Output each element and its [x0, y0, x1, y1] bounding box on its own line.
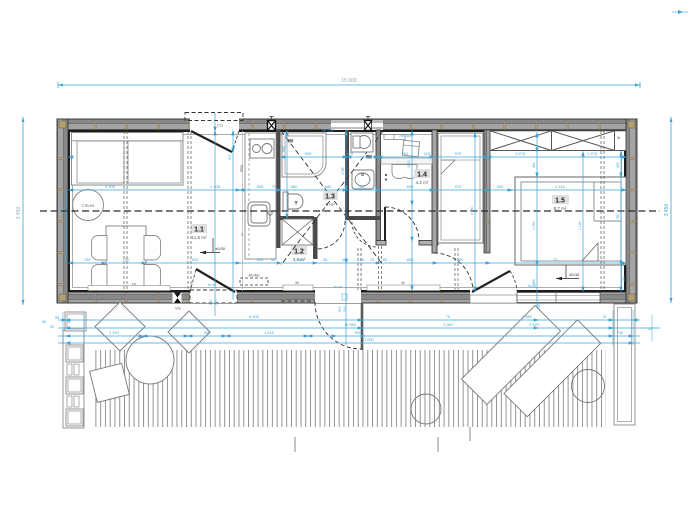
svg-text:1 580: 1 580 [522, 315, 532, 319]
svg-text:920: 920 [204, 331, 210, 335]
svg-text:3 450: 3 450 [664, 204, 670, 217]
svg-text:75: 75 [373, 184, 378, 189]
svg-text:1.2: 1.2 [294, 249, 304, 256]
svg-text:2 420: 2 420 [529, 323, 539, 327]
svg-text:300: 300 [214, 299, 218, 305]
svg-text:50: 50 [42, 320, 46, 324]
svg-text:2 110: 2 110 [555, 184, 565, 189]
svg-text:680: 680 [407, 257, 414, 262]
svg-text:75: 75 [446, 315, 450, 319]
svg-text:680: 680 [297, 257, 304, 262]
svg-text:690: 690 [407, 184, 414, 189]
svg-text:900: 900 [305, 151, 312, 156]
svg-text:75: 75 [602, 315, 606, 319]
svg-text:730: 730 [617, 331, 623, 335]
svg-text:900: 900 [228, 154, 232, 160]
svg-text:2 160: 2 160 [470, 206, 474, 215]
svg-text:M: M [296, 281, 299, 285]
svg-text:920: 920 [192, 257, 199, 262]
svg-text:115: 115 [424, 151, 431, 156]
svg-text:11 000: 11 000 [362, 338, 373, 342]
svg-text:1 275: 1 275 [587, 151, 598, 156]
svg-text:CTB-K0: CTB-K0 [82, 204, 95, 208]
svg-text:1 790: 1 790 [532, 221, 536, 230]
svg-text:2 060: 2 060 [443, 323, 453, 327]
svg-text:5 m²: 5 m² [326, 202, 336, 207]
svg-text:75: 75 [370, 257, 375, 262]
svg-text:970: 970 [455, 184, 462, 189]
svg-text:2 490: 2 490 [109, 331, 119, 335]
svg-text:h=±0: h=±0 [528, 284, 536, 288]
svg-text:h=±0: h=±0 [334, 285, 342, 289]
svg-text:11,8 m²: 11,8 m² [192, 235, 207, 240]
svg-text:440: 440 [359, 184, 366, 189]
svg-text:80: 80 [383, 257, 388, 262]
svg-text:75: 75 [66, 320, 70, 324]
svg-text:35: 35 [271, 257, 276, 262]
svg-text:95: 95 [55, 316, 59, 320]
svg-text:600: 600 [257, 257, 264, 262]
svg-text:1 390: 1 390 [616, 213, 620, 222]
svg-text:6 905: 6 905 [249, 315, 259, 319]
svg-text:75: 75 [553, 257, 558, 262]
svg-text:3 450: 3 450 [16, 207, 22, 220]
svg-text:475: 475 [347, 151, 354, 156]
svg-text:M: M [402, 281, 405, 285]
svg-text:±0,00: ±0,00 [215, 246, 226, 251]
svg-text:Hp-1500: Hp-1500 [322, 129, 334, 133]
svg-text:2 200: 2 200 [105, 184, 116, 189]
svg-text:900: 900 [338, 306, 342, 312]
svg-text:25: 25 [360, 257, 365, 262]
svg-text:1.3: 1.3 [325, 194, 335, 201]
svg-text:VG: VG [175, 306, 181, 311]
svg-text:10 560: 10 560 [344, 323, 356, 327]
svg-text:AC/AU: AC/AU [249, 274, 260, 278]
svg-text:700: 700 [84, 257, 91, 262]
svg-text:75: 75 [61, 206, 65, 210]
svg-text:±0,00: ±0,00 [569, 272, 580, 277]
svg-text:900: 900 [282, 146, 286, 152]
svg-text:15 000: 15 000 [341, 78, 357, 84]
svg-text:600: 600 [257, 184, 264, 189]
svg-text:490: 490 [497, 184, 504, 189]
svg-text:C13: C13 [217, 124, 223, 128]
svg-text:660: 660 [291, 184, 298, 189]
svg-text:900: 900 [402, 151, 409, 156]
svg-text:130: 130 [622, 276, 626, 282]
svg-text:75: 75 [272, 184, 277, 189]
svg-text:680: 680 [325, 184, 332, 189]
svg-text:FRD: FRD [240, 164, 244, 172]
svg-text:25: 25 [50, 325, 54, 329]
svg-text:260: 260 [457, 257, 464, 262]
svg-text:1.5: 1.5 [555, 198, 565, 205]
svg-text:20: 20 [648, 327, 652, 331]
svg-text:750 1600: 750 1600 [399, 134, 413, 138]
svg-text:h=±0: h=±0 [208, 283, 216, 287]
svg-text:920: 920 [355, 331, 361, 335]
svg-text:900: 900 [209, 299, 213, 305]
svg-text:1600: 1600 [407, 160, 411, 168]
svg-text:8,7 m²: 8,7 m² [554, 206, 567, 211]
svg-text:1 275: 1 275 [515, 151, 526, 156]
svg-text:700: 700 [123, 257, 130, 262]
svg-text:1.1: 1.1 [194, 227, 204, 234]
svg-text:1745: 1745 [341, 167, 345, 175]
svg-text:461: 461 [532, 162, 536, 168]
svg-text:4,2 m²: 4,2 m² [416, 180, 429, 185]
svg-text:300: 300 [343, 306, 347, 312]
svg-text:1 190: 1 190 [578, 221, 582, 230]
svg-text:1.4: 1.4 [417, 172, 427, 179]
svg-text:430: 430 [616, 162, 620, 168]
svg-text:1 415: 1 415 [264, 331, 274, 335]
svg-text:35: 35 [323, 257, 328, 262]
svg-text:1 105: 1 105 [210, 184, 221, 189]
svg-text:970: 970 [455, 151, 462, 156]
